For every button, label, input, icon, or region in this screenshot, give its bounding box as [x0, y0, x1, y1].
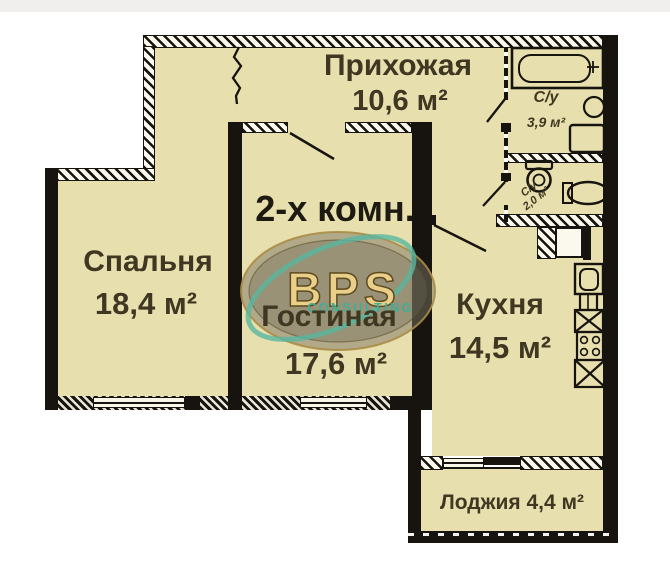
kitchen-area: 14,5 м² — [438, 332, 562, 365]
apartment-type-label: 2-х комн. — [245, 190, 425, 228]
sink-oval-icon — [563, 182, 608, 204]
bedroom-label: Спальня — [60, 246, 236, 278]
stove-icon — [577, 332, 603, 360]
bathroom-main-area: 3,9 м² — [516, 115, 576, 130]
kitchen-unit-x1-icon — [575, 310, 603, 332]
bathroom-main-label: С/у — [516, 90, 576, 107]
bathroom-main-door-swing — [487, 99, 505, 122]
hallway-area: 10,6 м² — [312, 86, 488, 116]
sink-round-icon — [584, 97, 604, 117]
watermark-logo: BPS CONSULTING — [233, 215, 435, 360]
bedroom-area: 18,4 м² — [58, 288, 234, 321]
loggia-label: Лоджия 4,4 м² — [426, 492, 598, 514]
kitchen-sink-icon — [575, 264, 603, 294]
entrance-break-icon — [233, 47, 241, 104]
kitchen-counter-icon — [580, 294, 597, 310]
living-room-label: Гостиная — [248, 301, 410, 333]
bathroom-small-door-swing — [483, 182, 505, 206]
floor-plan-canvas: BPS CONSULTING Прихожая 10,6 м² 2-х комн… — [0, 0, 670, 588]
kitchen-unit-x2-icon — [575, 360, 605, 387]
hallway-label: Прихожая — [310, 50, 486, 82]
bathtub-icon — [512, 48, 603, 88]
living-room-area: 17,6 м² — [255, 348, 417, 381]
living-room-door-swing — [290, 133, 334, 159]
kitchen-label: Кухня — [440, 289, 560, 321]
kitchen-door-swing — [434, 225, 486, 251]
